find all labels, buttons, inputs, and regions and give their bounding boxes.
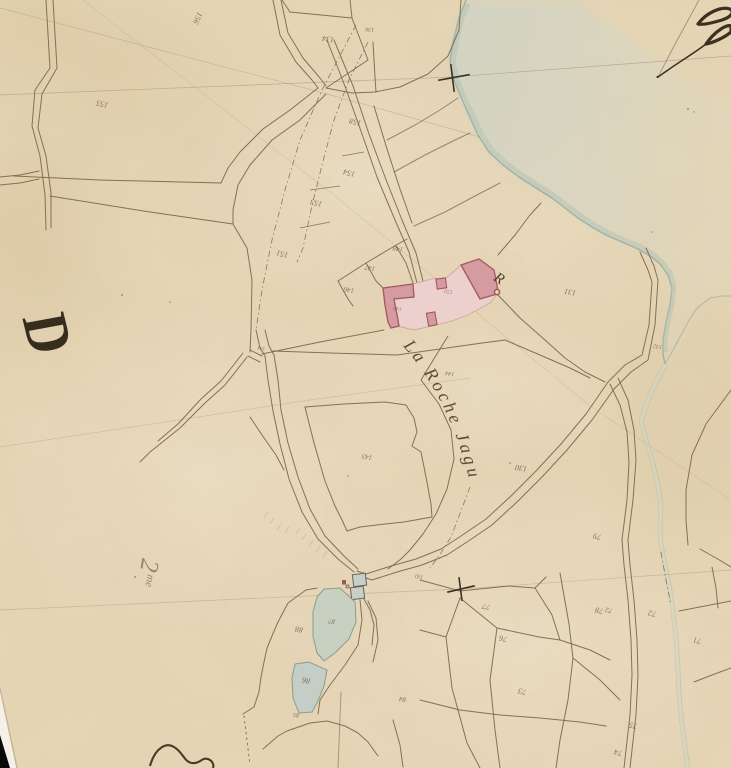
svg-text:73: 73: [517, 686, 526, 696]
svg-text:78: 78: [594, 605, 603, 615]
svg-text:88: 88: [294, 624, 303, 634]
svg-text:me: me: [142, 573, 156, 588]
svg-text:74: 74: [613, 747, 622, 757]
svg-text:136: 136: [365, 25, 374, 32]
svg-text:71: 71: [692, 635, 701, 645]
svg-text:86: 86: [301, 675, 310, 685]
svg-text:75: 75: [628, 720, 637, 730]
svg-text:72: 72: [647, 608, 656, 618]
svg-text:79: 79: [592, 531, 601, 541]
svg-text:85: 85: [293, 711, 300, 718]
svg-text:76: 76: [498, 633, 507, 643]
